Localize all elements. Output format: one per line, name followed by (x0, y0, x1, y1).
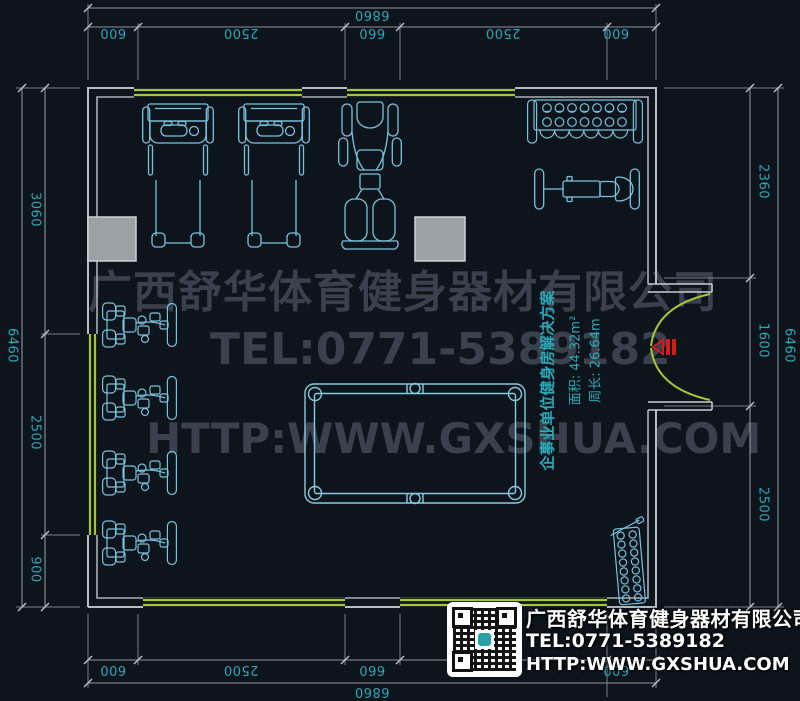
strength-machine-1 (103, 303, 177, 347)
strength-machine-2 (103, 376, 177, 420)
logo-web: HTTP:WWW.GXSHUA.COM (526, 654, 790, 675)
dim-left-seg: 900 (28, 538, 43, 602)
annotation-perimeter: 周长: 26.64m (585, 286, 604, 436)
qr-finder-icon (452, 651, 473, 672)
cad-floor-plan: 广西舒华体育健身器材有限公司 TEL:0771-5389182 HTTP:WWW… (0, 0, 800, 701)
dim-top-seg: 600 (81, 25, 145, 40)
dimension-lines (22, 8, 778, 683)
qr-code (447, 602, 522, 677)
dim-top-seg: 2500 (209, 25, 273, 40)
logo-tel: TEL:0771-5389182 (526, 630, 725, 652)
dim-top-seg: 2500 (471, 25, 535, 40)
strength-machine-4 (103, 521, 177, 565)
plate-rack (609, 516, 651, 605)
double-swing-door (648, 284, 712, 410)
dim-right-seg: 2500 (756, 473, 771, 537)
door-red-marker (653, 339, 676, 355)
dim-right-seg: 2360 (756, 150, 771, 214)
qr-center-logo-icon (475, 630, 494, 649)
dim-top-seg: 660 (340, 25, 404, 40)
treadmill-1 (143, 104, 214, 247)
annotation-title: 企事业单位健身房解决方案 (537, 271, 558, 491)
qr-finder-icon (496, 607, 517, 628)
dim-left-seg: 2500 (28, 401, 43, 465)
dim-right-overall: 6460 (782, 314, 797, 378)
dim-top-overall: 6860 (340, 7, 404, 22)
dim-top-seg: 600 (584, 25, 648, 40)
dim-bottom-seg: 660 (340, 662, 404, 677)
qr-finder-icon (452, 607, 473, 628)
floor-plan-svg (0, 0, 800, 701)
multi-station-trainer (339, 102, 402, 249)
dumbbell-rack (528, 100, 643, 143)
weight-bench (535, 169, 640, 209)
column (415, 217, 465, 261)
billiard-table (305, 384, 525, 504)
dim-bottom-seg: 2500 (209, 662, 273, 677)
annotation-area: 面积: 44.32m² (565, 286, 584, 436)
logo-company: 广西舒华体育健身器材有限公司 (526, 603, 800, 632)
dim-left-overall: 6460 (5, 314, 20, 378)
dim-bottom-overall: 6860 (340, 684, 404, 699)
treadmill-2 (239, 104, 310, 247)
column (88, 217, 136, 261)
dim-bottom-seg: 600 (81, 662, 145, 677)
strength-machine-3 (103, 451, 177, 495)
columns (88, 217, 465, 261)
dim-left-seg: 3060 (28, 178, 43, 242)
dim-right-seg: 1600 (756, 309, 771, 373)
